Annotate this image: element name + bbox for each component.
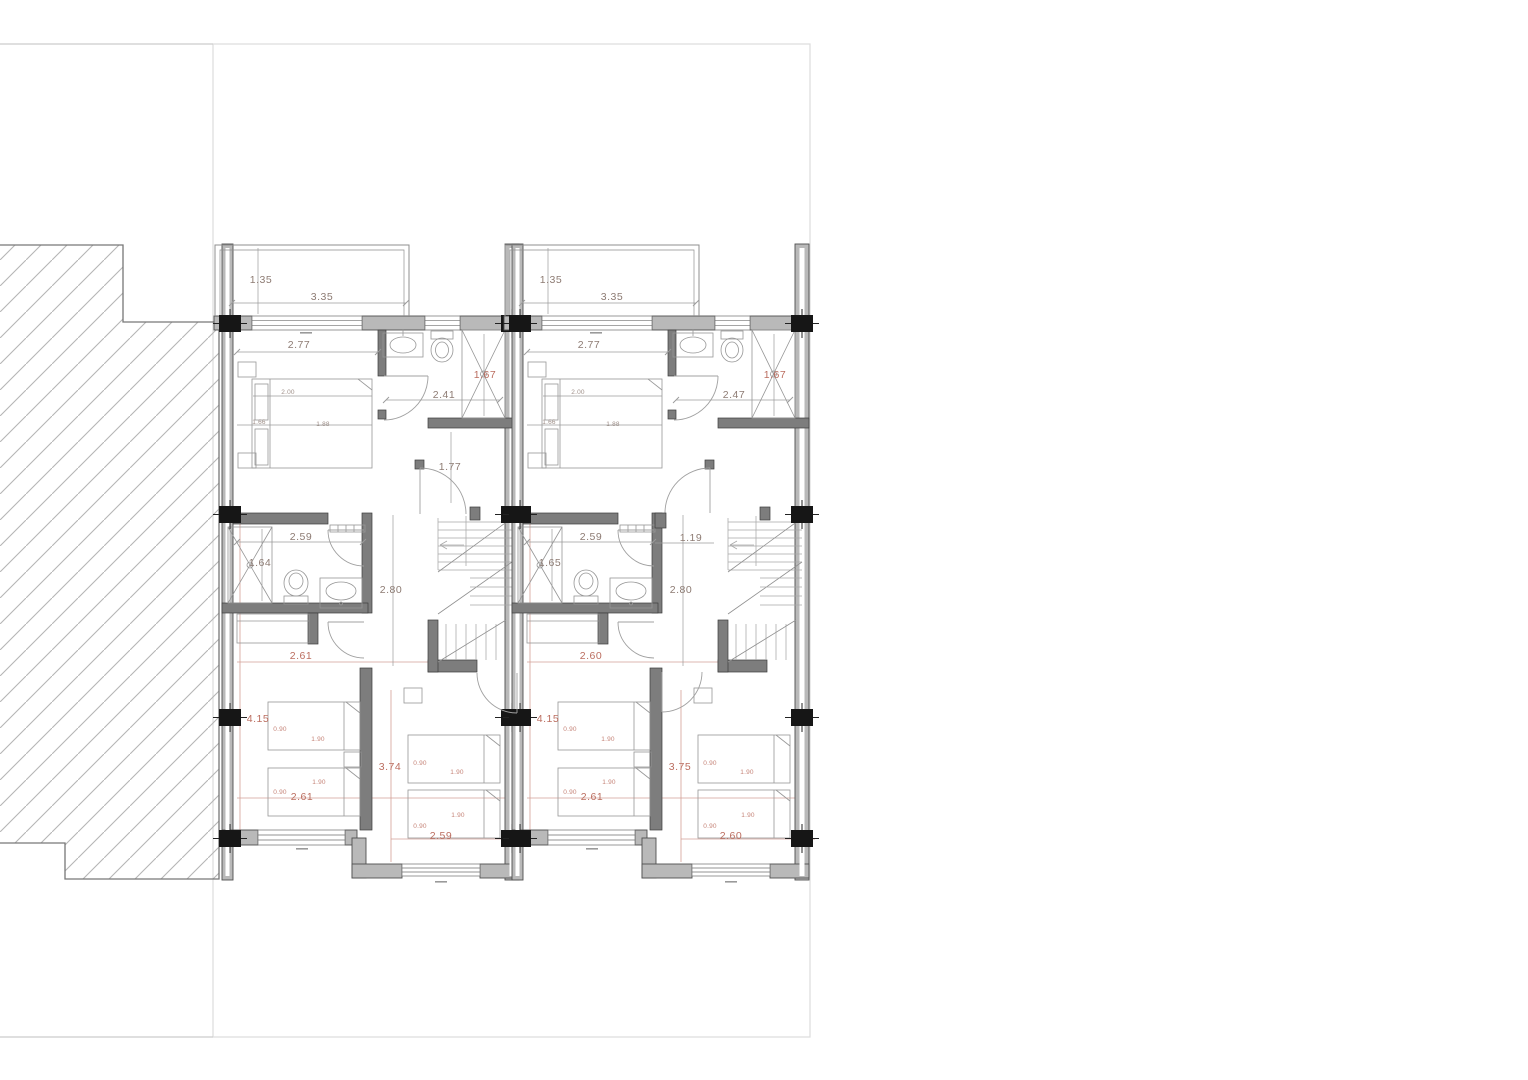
dimension-label: 4.15: [247, 713, 269, 725]
dimension-label: 1.35: [540, 274, 562, 286]
floor-plan-canvas: 1.353.352.772.001.661.882.411.671.772.59…: [0, 0, 1528, 1080]
dimension-label: 1.77: [439, 461, 461, 473]
dimension-label: 1.90: [740, 769, 754, 776]
dimension-label: 2.00: [571, 389, 585, 396]
dimension-label: 0.90: [703, 760, 717, 767]
dimension-label: 2.59: [580, 531, 602, 543]
wall-stub: [655, 513, 666, 528]
dimension-label: 0.90: [703, 823, 717, 830]
dimension-label: 2.77: [578, 339, 600, 351]
dimension-label: 1.65: [539, 557, 561, 569]
dimension-label: 0.90: [273, 789, 287, 796]
dimension-label: 0.90: [563, 789, 577, 796]
dimension-label: 0.90: [413, 760, 427, 767]
dimension-label: 1.67: [474, 369, 496, 381]
dimension-label: 2.00: [281, 389, 295, 396]
dimension-label: 2.41: [433, 389, 455, 401]
dimension-label: 4.15: [537, 713, 559, 725]
dimension-label: 3.35: [601, 291, 623, 303]
dimension-label: 0.90: [273, 726, 287, 733]
dimension-label: 2.61: [291, 791, 313, 803]
dimension-label: 1.88: [606, 421, 620, 428]
dimension-label: 1.66: [542, 419, 556, 426]
dimension-label: 2.80: [670, 584, 692, 596]
dimension-label: 3.75: [669, 761, 691, 773]
dimension-label: 1.90: [312, 779, 326, 786]
dimension-label: 2.60: [720, 830, 742, 842]
dimension-label: 1.64: [249, 557, 271, 569]
dimension-label: 1.88: [316, 421, 330, 428]
dimension-label: 1.90: [451, 812, 465, 819]
dimension-label: 1.67: [764, 369, 786, 381]
dimension-label: 2.59: [290, 531, 312, 543]
dimension-label: 3.74: [379, 761, 401, 773]
dimension-label: 0.90: [563, 726, 577, 733]
door-bedroom2-right: [662, 672, 702, 712]
dimension-label: 1.90: [741, 812, 755, 819]
dimension-label: 1.90: [450, 769, 464, 776]
dimension-label: 0.90: [413, 823, 427, 830]
dimension-label: 1.66: [252, 419, 266, 426]
dimension-label: 3.35: [311, 291, 333, 303]
dimension-label: 2.80: [380, 584, 402, 596]
dimension-label: 2.59: [430, 830, 452, 842]
door-entry-right: [665, 468, 710, 513]
dimension-label: 1.90: [602, 779, 616, 786]
hatch-area: [0, 245, 219, 879]
floor-plan-page: 1.353.352.772.001.661.882.411.671.772.59…: [0, 0, 1528, 1080]
dimension-label: 1.90: [601, 736, 615, 743]
door-entry-left: [420, 468, 466, 514]
dimension-label: 1.19: [680, 532, 702, 544]
dimension-label: 2.61: [581, 791, 603, 803]
dimension-label: 2.61: [290, 650, 312, 662]
dimension-label: 1.35: [250, 274, 272, 286]
dimension-label: 2.47: [723, 389, 745, 401]
dimension-label: 1.90: [311, 736, 325, 743]
dimension-label: 2.77: [288, 339, 310, 351]
dimension-label: 2.60: [580, 650, 602, 662]
